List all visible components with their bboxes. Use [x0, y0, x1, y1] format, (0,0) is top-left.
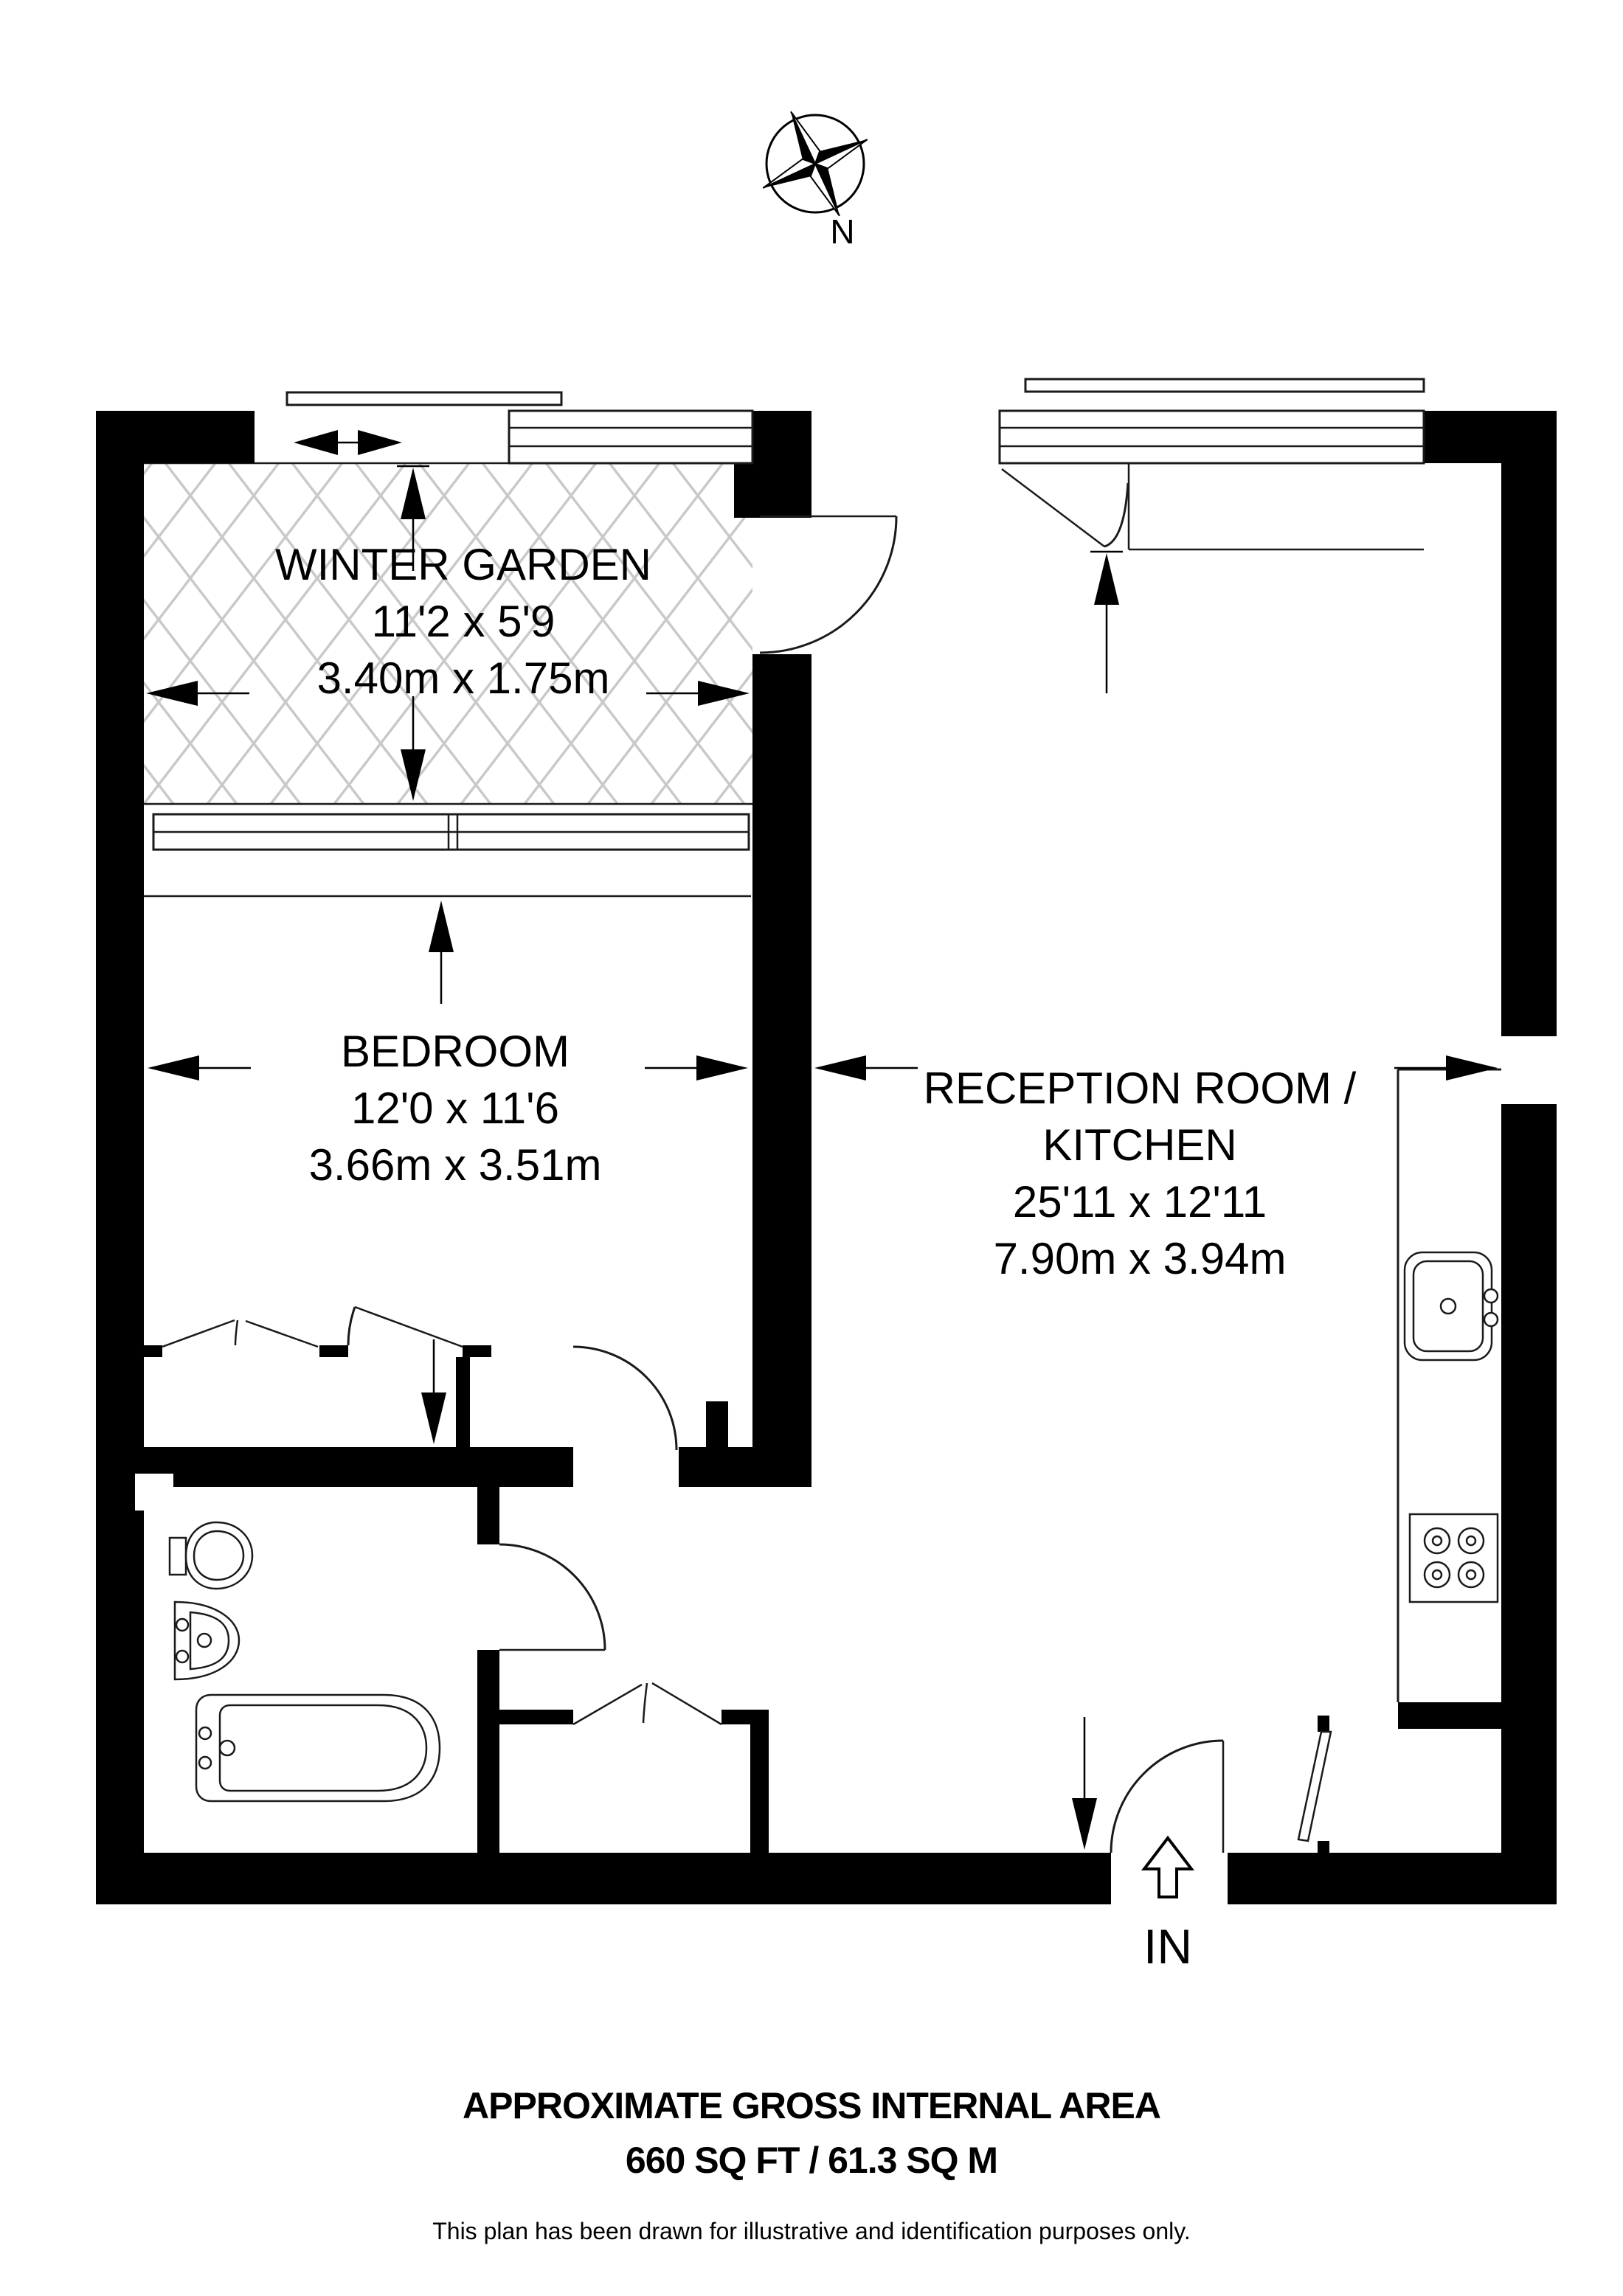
reception-imperial: 25'11 x 12'11	[1013, 1177, 1267, 1227]
wall-counter-end	[1398, 1702, 1501, 1729]
wall-outer-right-upper	[1501, 411, 1557, 1036]
floorplan-canvas: WINTER GARDEN 11'2 x 5'9 3.40m x 1.75m B…	[0, 0, 1623, 2296]
wintergarden-top-window	[509, 411, 752, 463]
bedroom-imperial: 12'0 x 11'6	[351, 1083, 559, 1133]
kitchen-side-window-gap	[1503, 1038, 1557, 1103]
bathroom-wall-notch	[135, 1474, 173, 1511]
room-bedroom: BEDROOM 12'0 x 11'6 3.66m x 3.51m	[309, 1027, 602, 1190]
wall-outer-top-right	[1424, 411, 1557, 463]
wall-wardrobe-stub-right	[319, 1345, 348, 1357]
reception-metric: 7.90m x 3.94m	[994, 1234, 1287, 1283]
wall-wardrobe-stub-left	[143, 1345, 162, 1357]
bedroom-name: BEDROOM	[341, 1027, 570, 1076]
winter-garden-name: WINTER GARDEN	[275, 540, 651, 589]
wall-outer-bottom-left	[96, 1853, 1111, 1904]
footer-area: 660 SQ FT / 61.3 SQ M	[626, 2140, 997, 2181]
north-label: N	[830, 212, 854, 251]
wall-outer-right-lower	[1501, 1104, 1557, 1853]
wall-outer-bottom-right	[1228, 1853, 1557, 1904]
reception-name-line1: RECEPTION ROOM /	[924, 1064, 1357, 1113]
wall-outer-top-left	[96, 411, 255, 463]
footer-title: APPROXIMATE GROSS INTERNAL AREA	[463, 2085, 1160, 2126]
wall-bedroom-door-jamb	[463, 1345, 491, 1357]
winter-garden-metric: 3.40m x 1.75m	[317, 653, 610, 703]
wall-hall-doorway-jamb	[679, 1447, 752, 1487]
wintergarden-balcony-rail	[287, 392, 561, 405]
floorplan-page: WINTER GARDEN 11'2 x 5'9 3.40m x 1.75m B…	[0, 0, 1623, 2296]
bedroom-metric: 3.66m x 3.51m	[309, 1140, 602, 1190]
wall-vestibule-stub	[456, 1357, 470, 1447]
wall-closet-right	[750, 1710, 769, 1853]
hob-icon	[1410, 1514, 1498, 1602]
wall-divider-bedroom-reception	[752, 654, 811, 1487]
wall-panel-nub-bottom	[1318, 1841, 1329, 1857]
bathtub-icon	[196, 1695, 440, 1801]
winter-garden-imperial: 11'2 x 5'9	[372, 597, 556, 646]
wall-hall-stub	[706, 1401, 728, 1447]
wall-panel-nub-top	[1318, 1716, 1329, 1732]
wall-closet-top-left	[499, 1710, 573, 1724]
wall-outer-left	[96, 411, 144, 1904]
reception-balcony-rail	[1025, 379, 1424, 392]
wall-bathroom-right-upper	[477, 1487, 499, 1544]
entrance-label: IN	[1143, 1919, 1192, 1974]
reception-name-line2: KITCHEN	[1042, 1120, 1236, 1170]
footer-disclaimer: This plan has been drawn for illustrativ…	[432, 2218, 1191, 2244]
wall-bathroom-right-lower	[477, 1650, 499, 1853]
sink-icon	[1405, 1252, 1498, 1360]
